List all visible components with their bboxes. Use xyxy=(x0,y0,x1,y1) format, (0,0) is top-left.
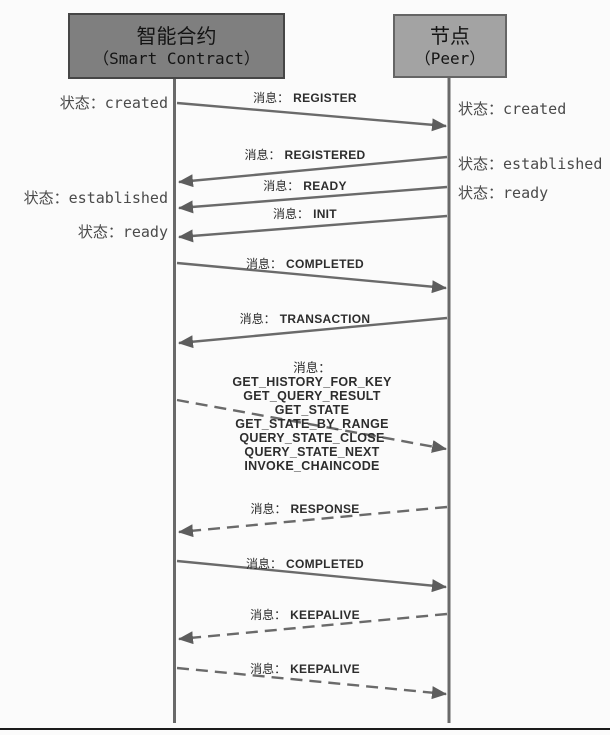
message-prefix: 消息： xyxy=(250,608,286,622)
state-peer-established: 状态：established xyxy=(458,153,602,174)
message-value: REGISTERED xyxy=(285,148,366,162)
state-contract-established: 状态：established xyxy=(24,187,168,208)
state-value: created xyxy=(105,94,168,112)
state-peer-created: 状态：created xyxy=(458,98,566,119)
state-prefix: 状态： xyxy=(60,94,105,112)
message-value: COMPLETED xyxy=(286,557,364,571)
message-registered: 消息：REGISTERED xyxy=(244,146,365,163)
state-value: ready xyxy=(123,223,168,241)
message-prefix: 消息： xyxy=(273,207,309,221)
message-value: INIT xyxy=(313,207,337,221)
actor-peer-title: 节点 xyxy=(430,24,470,48)
actor-peer: 节点 （Peer） xyxy=(393,14,507,78)
message-prefix: 消息： xyxy=(250,502,286,516)
bottom-border xyxy=(0,728,610,730)
state-value: established xyxy=(503,155,602,173)
state-value: ready xyxy=(503,184,548,202)
arrow-register xyxy=(177,103,446,126)
message-value: GET_QUERY_RESULT xyxy=(232,389,391,403)
state-prefix: 状态： xyxy=(24,189,69,207)
message-keepalive-1: 消息：KEEPALIVE xyxy=(250,606,360,623)
message-value: INVOKE_CHAINCODE xyxy=(232,459,391,473)
message-value: GET_STATE_BY_RANGE xyxy=(232,417,391,431)
message-value: RESPONSE xyxy=(290,502,359,516)
actor-peer-subtitle: （Peer） xyxy=(415,48,486,69)
message-completed-1: 消息：COMPLETED xyxy=(246,255,364,272)
message-transaction: 消息：TRANSACTION xyxy=(240,310,371,327)
message-prefix: 消息： xyxy=(253,91,289,105)
state-contract-ready: 状态：ready xyxy=(78,221,168,242)
message-init: 消息：INIT xyxy=(273,205,337,222)
message-keepalive-2: 消息：KEEPALIVE xyxy=(250,660,360,677)
state-contract-created: 状态：created xyxy=(60,92,168,113)
message-value: GET_HISTORY_FOR_KEY xyxy=(232,375,391,389)
state-prefix: 状态： xyxy=(458,184,503,202)
message-prefix: 消息： xyxy=(246,557,282,571)
actor-smart-contract-subtitle: （Smart Contract） xyxy=(93,48,260,69)
state-value: created xyxy=(503,100,566,118)
message-value: QUERY_STATE_CLOSE xyxy=(232,431,391,445)
state-prefix: 状态： xyxy=(78,223,123,241)
message-prefix: 消息： xyxy=(250,662,286,676)
message-prefix: 消息： xyxy=(246,257,282,271)
actor-smart-contract: 智能合约 （Smart Contract） xyxy=(68,13,285,79)
message-prefix: 消息： xyxy=(263,179,299,193)
state-peer-ready: 状态：ready xyxy=(458,182,548,203)
state-prefix: 状态： xyxy=(458,100,503,118)
message-value: KEEPALIVE xyxy=(290,662,360,676)
message-completed-2: 消息：COMPLETED xyxy=(246,555,364,572)
message-value: TRANSACTION xyxy=(280,312,371,326)
sequence-diagram: 智能合约 （Smart Contract） 节点 （Peer） 状态：creat… xyxy=(0,0,610,735)
state-value: established xyxy=(69,189,168,207)
message-query-group: 消息： GET_HISTORY_FOR_KEY GET_QUERY_RESULT… xyxy=(232,361,391,473)
message-register: 消息：REGISTER xyxy=(253,89,357,106)
message-value: COMPLETED xyxy=(286,257,364,271)
message-prefix: 消息： xyxy=(293,361,331,375)
state-prefix: 状态： xyxy=(458,155,503,173)
message-value: READY xyxy=(303,179,347,193)
message-response: 消息：RESPONSE xyxy=(250,500,359,517)
message-prefix: 消息： xyxy=(240,312,276,326)
message-ready: 消息：READY xyxy=(263,177,347,194)
message-prefix: 消息： xyxy=(244,148,280,162)
message-value: QUERY_STATE_NEXT xyxy=(232,445,391,459)
message-value: KEEPALIVE xyxy=(290,608,360,622)
actor-smart-contract-title: 智能合约 xyxy=(137,24,217,48)
message-value: REGISTER xyxy=(293,91,357,105)
message-value: GET_STATE xyxy=(232,403,391,417)
